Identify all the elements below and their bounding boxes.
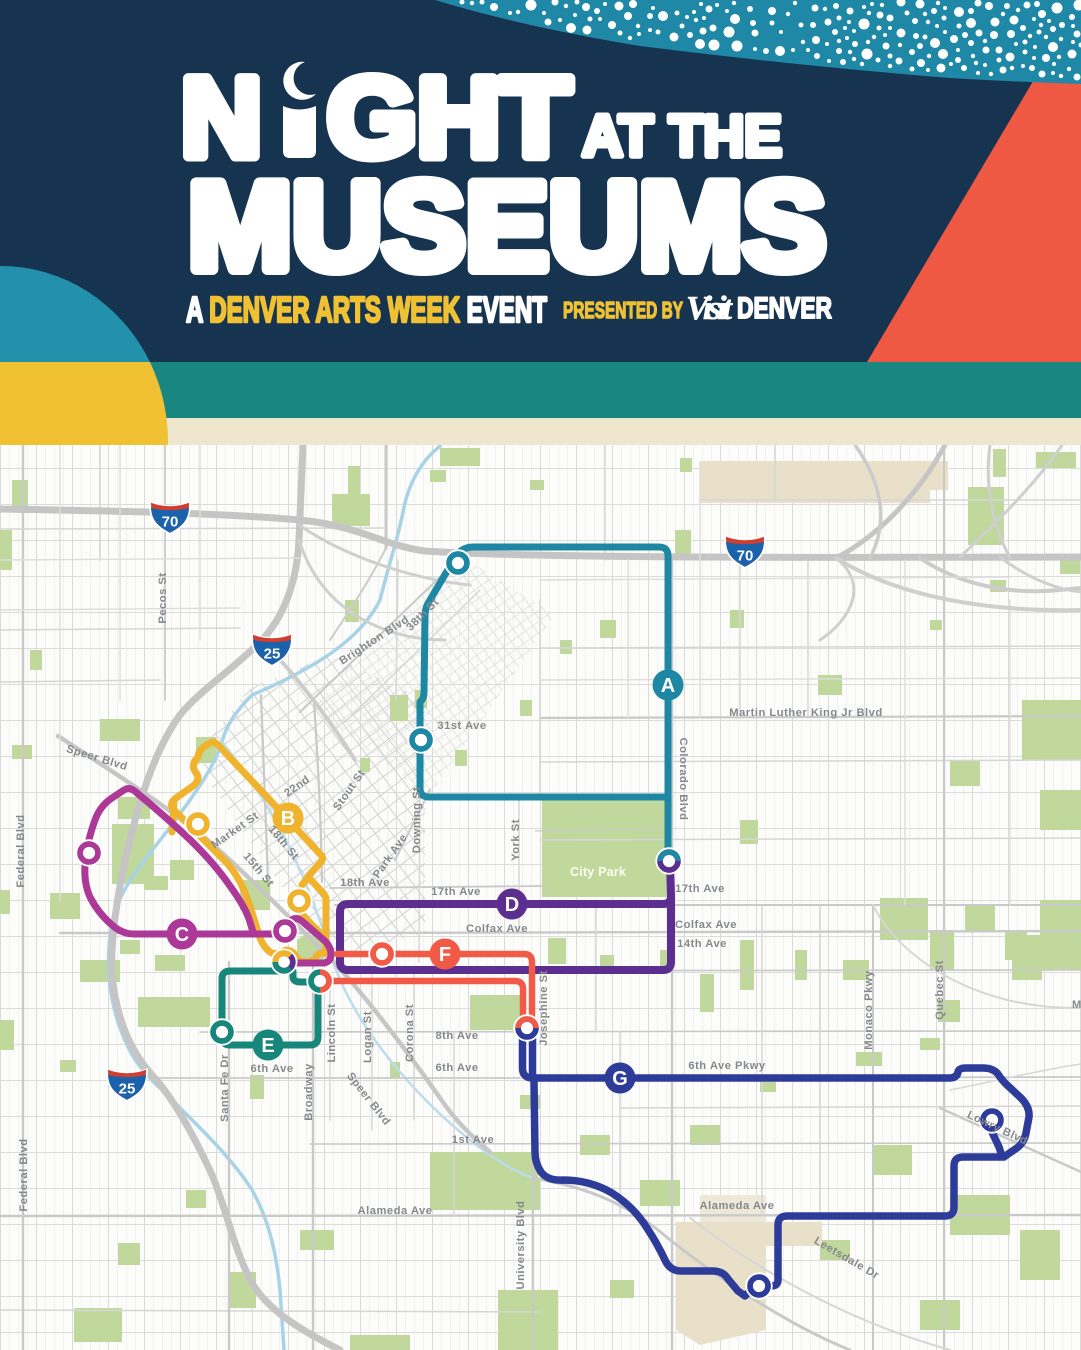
svg-text:Pecos St: Pecos St xyxy=(157,572,169,623)
svg-text:Martin Luther King Jr Blvd: Martin Luther King Jr Blvd xyxy=(729,707,882,719)
svg-text:PRESENTED BY: PRESENTED BY xyxy=(563,297,683,323)
svg-text:6th Ave: 6th Ave xyxy=(435,1062,478,1074)
svg-text:Colorado Blvd: Colorado Blvd xyxy=(677,738,689,821)
svg-text:City Park: City Park xyxy=(570,865,626,879)
svg-text:University Blvd: University Blvd xyxy=(515,1201,527,1290)
svg-text:DENVER: DENVER xyxy=(737,292,832,325)
svg-text:D: D xyxy=(505,894,519,916)
svg-text:Visit: Visit xyxy=(686,290,734,327)
svg-text:25: 25 xyxy=(264,646,281,663)
svg-text:MUSEUMS: MUSEUMS xyxy=(188,158,826,296)
svg-text:E: E xyxy=(261,1035,274,1057)
svg-text:17th Ave: 17th Ave xyxy=(431,886,481,898)
svg-text:Santa Fe Dr: Santa Fe Dr xyxy=(219,1054,231,1122)
svg-text:Corona St: Corona St xyxy=(404,1004,416,1062)
svg-text:70: 70 xyxy=(162,514,179,531)
svg-text:70: 70 xyxy=(737,548,754,565)
svg-text:Lincoln St: Lincoln St xyxy=(326,1003,338,1062)
svg-text:Colfax Ave: Colfax Ave xyxy=(466,923,528,935)
svg-text:Federal Blvd: Federal Blvd xyxy=(18,1138,30,1211)
svg-text:York St: York St xyxy=(510,819,522,861)
svg-text:14th Ave: 14th Ave xyxy=(677,938,727,950)
svg-text:Alameda Ave: Alameda Ave xyxy=(700,1200,775,1212)
svg-text:Federal Blvd: Federal Blvd xyxy=(15,814,27,887)
svg-text:B: B xyxy=(281,808,295,830)
svg-text:A DENVER ARTS WEEK EVENT: A DENVER ARTS WEEK EVENT xyxy=(186,289,547,330)
svg-text:Colfax Ave: Colfax Ave xyxy=(675,919,737,931)
svg-text:Downing St: Downing St xyxy=(411,787,423,854)
svg-text:Ma: Ma xyxy=(1072,999,1081,1011)
svg-text:18th Ave: 18th Ave xyxy=(340,877,390,889)
svg-text:25: 25 xyxy=(119,1081,136,1098)
svg-text:F: F xyxy=(439,944,451,966)
svg-text:Quebec St: Quebec St xyxy=(934,960,946,1020)
svg-text:G: G xyxy=(612,1068,628,1090)
svg-text:6th Ave: 6th Ave xyxy=(250,1063,293,1075)
svg-text:6th Ave Pkwy: 6th Ave Pkwy xyxy=(688,1060,766,1072)
svg-text:A: A xyxy=(661,675,675,697)
svg-text:31st Ave: 31st Ave xyxy=(437,720,486,732)
svg-text:1st Ave: 1st Ave xyxy=(452,1134,494,1146)
svg-text:Logan St: Logan St xyxy=(362,1011,374,1063)
svg-text:Broadway: Broadway xyxy=(303,1063,315,1121)
svg-text:Monaco Pkwy: Monaco Pkwy xyxy=(863,970,875,1050)
svg-text:Josephine St: Josephine St xyxy=(538,970,550,1046)
svg-text:8th Ave: 8th Ave xyxy=(435,1030,478,1042)
svg-text:C: C xyxy=(175,924,189,946)
svg-text:Alameda Ave: Alameda Ave xyxy=(358,1205,433,1217)
svg-text:17th Ave: 17th Ave xyxy=(675,883,725,895)
